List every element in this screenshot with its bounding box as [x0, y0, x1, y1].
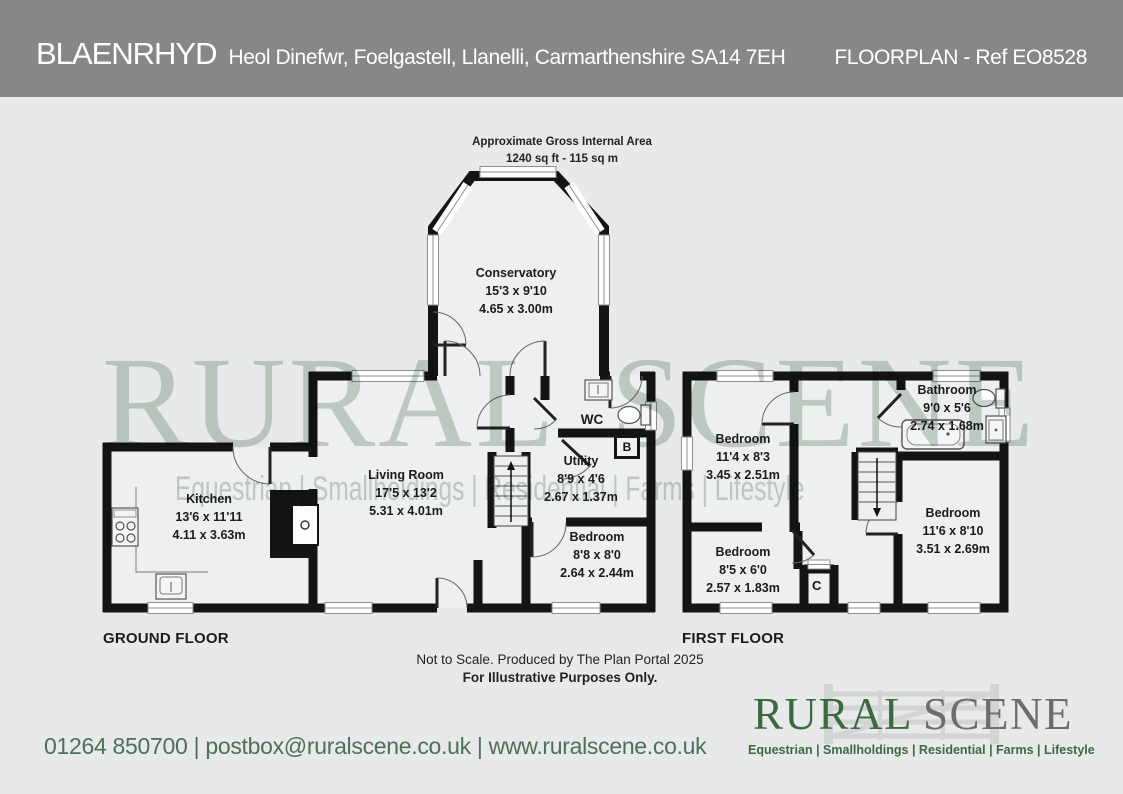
rural-scene-logo: RURALSCENE Equestrian | Smallholdings | … — [748, 682, 1078, 762]
window-icon — [352, 371, 424, 382]
window-icon — [325, 603, 372, 614]
room-label-utility: Utility 8'9 x 4'6 2.67 x 1.37m — [544, 452, 618, 506]
room-size-imperial: 8'5 x 6'0 — [706, 561, 780, 579]
window-icon — [720, 603, 772, 614]
stairs-down-icon — [858, 452, 896, 520]
logo-word-rural: RURAL — [753, 689, 913, 739]
logo-tagline: Equestrian | Smallholdings | Residential… — [748, 743, 1078, 757]
room-size-imperial: 8'8 x 8'0 — [560, 546, 634, 564]
room-name: Bedroom — [916, 504, 990, 522]
room-name: Kitchen — [173, 490, 246, 508]
floorplan-page: { "header": { "property_name": "BLAENRHY… — [0, 0, 1123, 794]
window-icon — [552, 603, 600, 614]
first-floor-label: FIRST FLOOR — [682, 630, 784, 647]
fireplace-stove-icon — [270, 490, 318, 558]
window-icon — [717, 371, 773, 382]
ground-floor-label: GROUND FLOOR — [103, 630, 229, 647]
room-label-living-room: Living Room 17'5 x 13'2 5.31 x 4.01m — [368, 466, 444, 520]
room-label-bedroom-ground: Bedroom 8'8 x 8'0 2.64 x 2.44m — [560, 528, 634, 582]
room-label-bedroom-three: Bedroom 11'6 x 8'10 3.51 x 2.69m — [916, 504, 990, 558]
window-icon — [933, 371, 980, 382]
room-size-imperial: 13'6 x 11'11 — [173, 508, 246, 526]
area-note-line1: Approximate Gross Internal Area — [472, 134, 652, 151]
window-icon — [148, 603, 193, 614]
gross-internal-area-note: Approximate Gross Internal Area 1240 sq … — [472, 134, 652, 167]
disclaimer-line2: For Illustrative Purposes Only. — [416, 669, 703, 687]
cupboard-marker: C — [812, 578, 821, 593]
room-size-metric: 3.45 x 2.51m — [706, 466, 780, 484]
window-icon — [928, 603, 980, 614]
window-icon — [599, 235, 610, 305]
room-name: Utility — [544, 452, 618, 470]
wc-sink-icon — [585, 380, 612, 400]
kitchen-sink-icon — [156, 574, 186, 599]
room-size-metric: 3.51 x 2.69m — [916, 540, 990, 558]
room-label-bedroom-one: Bedroom 11'4 x 8'3 3.45 x 2.51m — [706, 430, 780, 484]
room-label-kitchen: Kitchen 13'6 x 11'11 4.11 x 3.63m — [173, 490, 246, 544]
room-size-imperial: 8'9 x 4'6 — [544, 470, 618, 488]
window-icon — [848, 603, 880, 614]
room-name: Conservatory — [476, 264, 557, 282]
room-label-bedroom-two: Bedroom 8'5 x 6'0 2.57 x 1.83m — [706, 543, 780, 597]
window-icon — [480, 167, 556, 178]
room-name: WC — [581, 410, 604, 430]
room-size-metric: 5.31 x 4.01m — [368, 502, 444, 520]
bathroom-sink-icon — [986, 416, 1006, 443]
room-name: Living Room — [368, 466, 444, 484]
room-size-metric: 2.64 x 2.44m — [560, 564, 634, 582]
room-name: Bedroom — [560, 528, 634, 546]
window-icon — [428, 235, 439, 305]
room-size-imperial: 17'5 x 13'2 — [368, 484, 444, 502]
hob-icon — [112, 508, 138, 546]
area-note-line2: 1240 sq ft - 115 sq m — [472, 151, 652, 168]
logo-title: RURALSCENE — [748, 688, 1078, 740]
disclaimer: Not to Scale. Produced by The Plan Porta… — [416, 651, 703, 686]
agent-contact-line: 01264 850700 | postbox@ruralscene.co.uk … — [44, 733, 706, 760]
room-size-metric: 2.57 x 1.83m — [706, 579, 780, 597]
room-size-imperial: 15'3 x 9'10 — [476, 282, 557, 300]
logo-word-scene: SCENE — [923, 689, 1073, 739]
room-size-metric: 4.11 x 3.63m — [173, 526, 246, 544]
room-size-metric: 2.74 x 1.68m — [910, 417, 984, 435]
window-icon — [682, 437, 693, 470]
boiler-marker: B — [614, 435, 640, 459]
room-size-imperial: 9'0 x 5'6 — [910, 399, 984, 417]
stairs-up-icon — [494, 456, 528, 526]
room-size-metric: 4.65 x 3.00m — [476, 300, 557, 318]
room-name: Bedroom — [706, 543, 780, 561]
room-name: Bathroom — [910, 381, 984, 399]
room-label-bathroom: Bathroom 9'0 x 5'6 2.74 x 1.68m — [910, 381, 984, 435]
cupboard-door-icon — [808, 560, 830, 569]
room-size-imperial: 11'6 x 8'10 — [916, 522, 990, 540]
disclaimer-line1: Not to Scale. Produced by The Plan Porta… — [416, 651, 703, 669]
room-name: Bedroom — [706, 430, 780, 448]
room-size-metric: 2.67 x 1.37m — [544, 488, 618, 506]
wc-toilet-icon — [618, 405, 650, 425]
room-label-conservatory: Conservatory 15'3 x 9'10 4.65 x 3.00m — [476, 264, 557, 318]
room-label-wc: WC — [581, 410, 604, 430]
room-size-imperial: 11'4 x 8'3 — [706, 448, 780, 466]
